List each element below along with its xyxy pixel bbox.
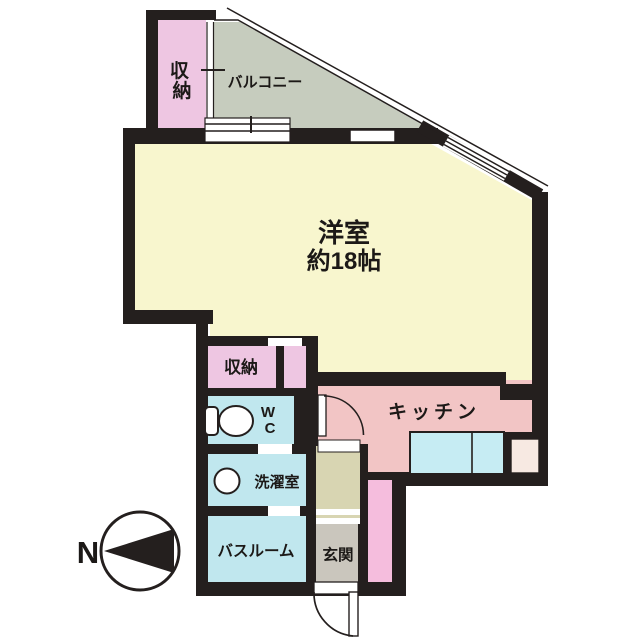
label-living-name: 洋室 xyxy=(318,218,370,248)
kitchen-door-leaf xyxy=(318,395,326,436)
label-balcony: バルコニー xyxy=(228,74,303,91)
wall-wc-bottom xyxy=(196,444,310,454)
service-door xyxy=(511,439,539,473)
wall-closet-top-left xyxy=(146,10,158,144)
label-laundry: 洗濯室 xyxy=(254,473,299,491)
label-bathroom: バスルーム xyxy=(217,542,294,560)
wall-laundry-right xyxy=(306,444,316,594)
kitchen-door-threshold xyxy=(318,440,360,452)
wall-bottom xyxy=(196,582,406,596)
wall-right xyxy=(532,192,548,474)
entrance-step-bar-1 xyxy=(316,509,360,515)
label-kitchen: キッチン xyxy=(388,402,480,423)
floorplan-page: N 収 納 バルコニー 洋室 約18帖 収納 W C キッチン 洗濯室 バスルー… xyxy=(0,0,640,640)
floorplan-drawing: N 収 納 バルコニー 洋室 約18帖 収納 W C キッチン 洗濯室 バスルー… xyxy=(0,0,640,640)
wall-kitchen-top xyxy=(306,372,506,386)
compass-north-label: N xyxy=(77,535,99,570)
room-closet-narrow xyxy=(284,344,306,390)
label-closet-top: 収 納 xyxy=(170,60,194,102)
label-living-size: 約18帖 xyxy=(307,247,382,275)
wc-door-opening xyxy=(258,444,292,454)
label-closet-mid: 収納 xyxy=(224,357,258,377)
wall-kitchen-notch xyxy=(500,384,534,400)
window-2 xyxy=(350,130,395,142)
laundry-door-opening xyxy=(268,506,300,516)
accent-pink-strip xyxy=(368,480,392,586)
wall-entrance-right xyxy=(358,520,366,586)
wall-left xyxy=(123,128,135,324)
washer-icon xyxy=(215,469,240,494)
wall-strip-right xyxy=(392,472,406,596)
toilet-tank-icon xyxy=(205,407,218,435)
toilet-bowl-icon xyxy=(219,406,253,436)
entrance-door-leaf xyxy=(349,592,358,636)
sliding-window xyxy=(205,118,290,142)
kitchen-counter xyxy=(410,432,504,474)
label-entrance: 玄関 xyxy=(322,545,353,564)
entrance-step-bar-2 xyxy=(316,518,360,524)
compass: N xyxy=(77,512,179,590)
closet-mid-opening xyxy=(268,338,302,346)
wall-wc-right xyxy=(294,394,318,446)
entrance-door-arc xyxy=(314,592,353,636)
room-fills xyxy=(135,20,537,586)
